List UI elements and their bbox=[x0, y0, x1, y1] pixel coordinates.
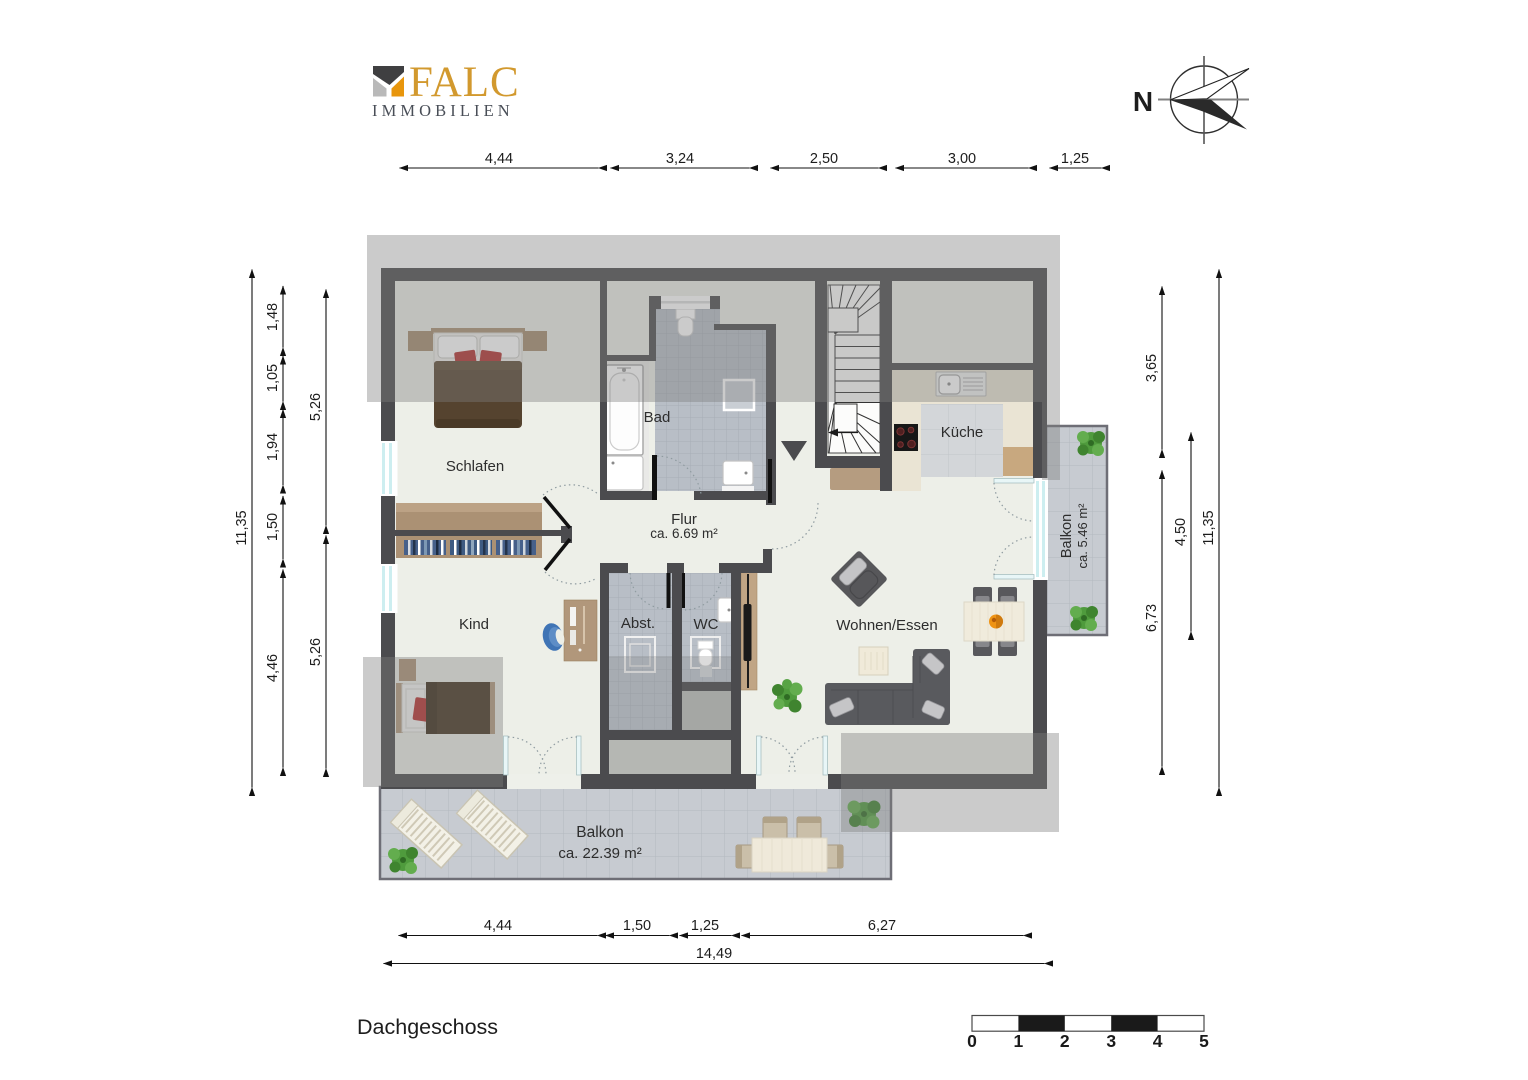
svg-text:1,50: 1,50 bbox=[623, 918, 651, 934]
svg-text:Balkon: Balkon bbox=[576, 824, 623, 841]
svg-text:ca. 6.69 m²: ca. 6.69 m² bbox=[650, 526, 718, 541]
svg-text:4,50: 4,50 bbox=[1173, 518, 1189, 546]
svg-text:3,00: 3,00 bbox=[948, 151, 976, 167]
svg-text:11,35: 11,35 bbox=[234, 510, 250, 545]
svg-text:Balkon: Balkon bbox=[1059, 514, 1075, 558]
svg-text:1: 1 bbox=[1014, 1031, 1024, 1051]
svg-text:1,50: 1,50 bbox=[265, 513, 281, 541]
svg-text:ca. 22.39 m²: ca. 22.39 m² bbox=[558, 845, 641, 862]
svg-text:IMMOBILIEN: IMMOBILIEN bbox=[372, 101, 514, 120]
svg-text:FALC: FALC bbox=[409, 59, 520, 106]
svg-text:3: 3 bbox=[1106, 1031, 1116, 1051]
svg-text:2: 2 bbox=[1060, 1031, 1070, 1051]
svg-text:Küche: Küche bbox=[941, 424, 984, 441]
svg-text:4,44: 4,44 bbox=[485, 151, 513, 167]
svg-text:ca. 5.46 m²: ca. 5.46 m² bbox=[1075, 503, 1090, 569]
svg-text:3,24: 3,24 bbox=[666, 151, 694, 167]
svg-text:6,27: 6,27 bbox=[868, 918, 896, 934]
svg-text:Kind: Kind bbox=[459, 616, 489, 633]
svg-text:1,48: 1,48 bbox=[265, 303, 281, 331]
svg-text:Abst.: Abst. bbox=[621, 615, 655, 632]
svg-text:Schlafen: Schlafen bbox=[446, 458, 504, 475]
svg-text:4,44: 4,44 bbox=[484, 918, 512, 934]
svg-text:1,05: 1,05 bbox=[265, 364, 281, 392]
svg-text:1,25: 1,25 bbox=[1061, 151, 1089, 167]
svg-text:Wohnen/Essen: Wohnen/Essen bbox=[836, 617, 937, 634]
svg-text:4: 4 bbox=[1153, 1031, 1163, 1051]
svg-text:3,65: 3,65 bbox=[1144, 354, 1160, 382]
svg-text:WC: WC bbox=[694, 616, 719, 633]
svg-text:1,25: 1,25 bbox=[691, 918, 719, 934]
svg-text:1,94: 1,94 bbox=[265, 433, 281, 461]
svg-text:2,50: 2,50 bbox=[810, 151, 838, 167]
svg-text:4,46: 4,46 bbox=[265, 654, 281, 682]
svg-text:11,35: 11,35 bbox=[1201, 510, 1217, 545]
svg-text:Dachgeschoss: Dachgeschoss bbox=[357, 1015, 498, 1039]
svg-text:5,26: 5,26 bbox=[308, 393, 324, 421]
svg-text:14,49: 14,49 bbox=[696, 946, 732, 962]
svg-text:5,26: 5,26 bbox=[308, 638, 324, 666]
svg-text:Bad: Bad bbox=[644, 409, 671, 426]
svg-text:N: N bbox=[1133, 86, 1153, 117]
svg-text:5: 5 bbox=[1199, 1031, 1209, 1051]
svg-text:6,73: 6,73 bbox=[1144, 604, 1160, 632]
svg-text:0: 0 bbox=[967, 1031, 977, 1051]
